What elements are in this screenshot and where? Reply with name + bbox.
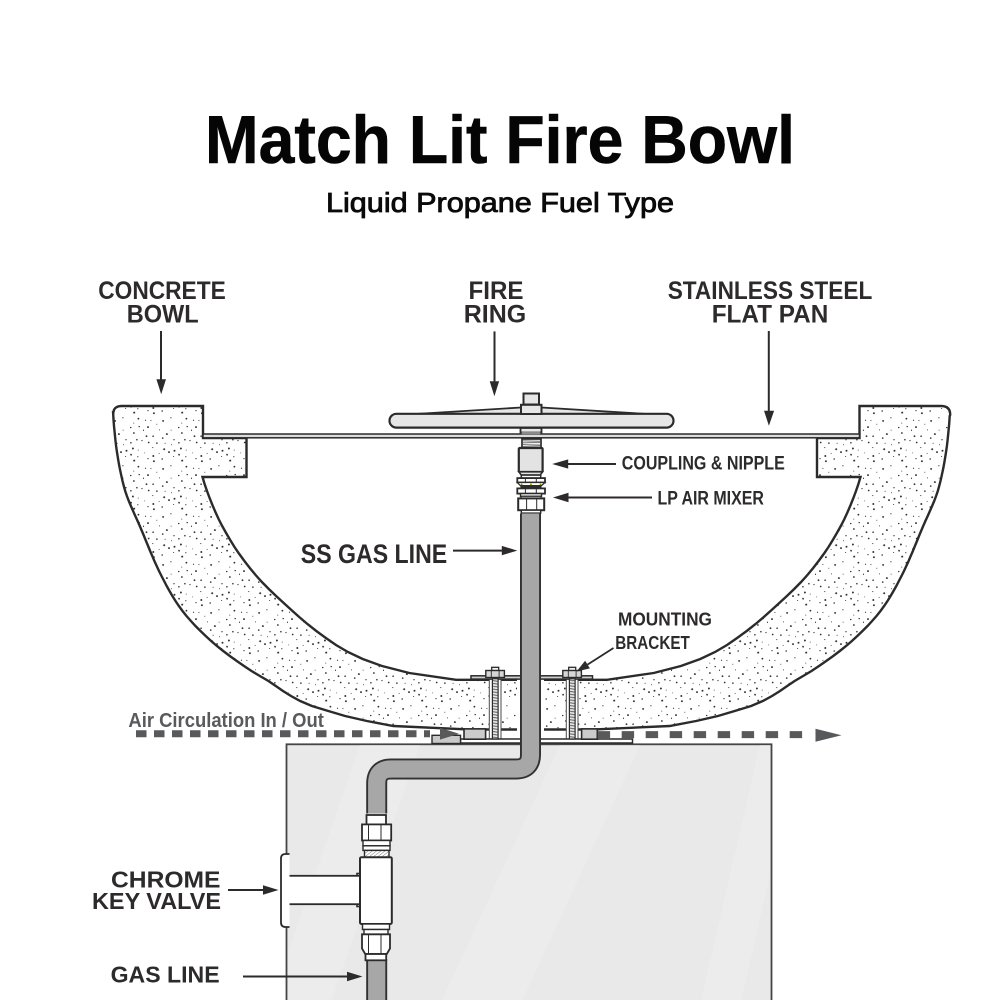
svg-text:Match Lit Fire Bowl: Match Lit Fire Bowl bbox=[205, 102, 795, 178]
svg-text:COUPLING & NIPPLE: COUPLING & NIPPLE bbox=[622, 454, 785, 475]
svg-text:BRACKET: BRACKET bbox=[615, 633, 690, 653]
svg-text:MOUNTING: MOUNTING bbox=[618, 610, 712, 630]
svg-text:Air Circulation In / Out: Air Circulation In / Out bbox=[128, 710, 324, 732]
svg-text:Liquid Propane Fuel Type: Liquid Propane Fuel Type bbox=[326, 187, 674, 218]
svg-text:KEY VALVE: KEY VALVE bbox=[92, 888, 221, 914]
svg-text:RING: RING bbox=[464, 300, 527, 328]
svg-text:FLAT PAN: FLAT PAN bbox=[712, 300, 829, 328]
svg-text:LP AIR MIXER: LP AIR MIXER bbox=[658, 489, 765, 510]
svg-text:GAS LINE: GAS LINE bbox=[111, 962, 220, 988]
svg-text:BOWL: BOWL bbox=[127, 300, 199, 328]
svg-text:SS GAS LINE: SS GAS LINE bbox=[301, 539, 447, 569]
